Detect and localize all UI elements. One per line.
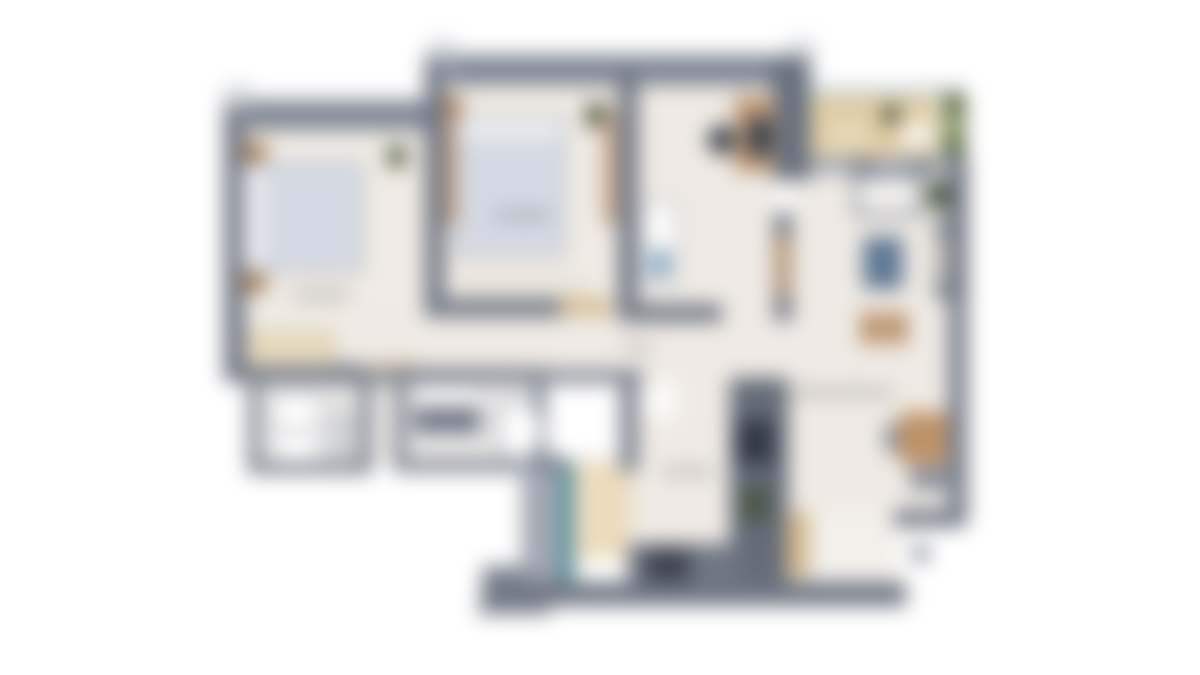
svg-text:Schlafen: Schlafen — [493, 207, 551, 224]
svg-text:Schlafen: Schlafen — [292, 287, 350, 304]
svg-text:Wohnen/Essen: Wohnen/Essen — [792, 384, 893, 401]
svg-text:Kochen: Kochen — [663, 463, 714, 480]
svg-text:Flur: Flur — [625, 339, 651, 356]
